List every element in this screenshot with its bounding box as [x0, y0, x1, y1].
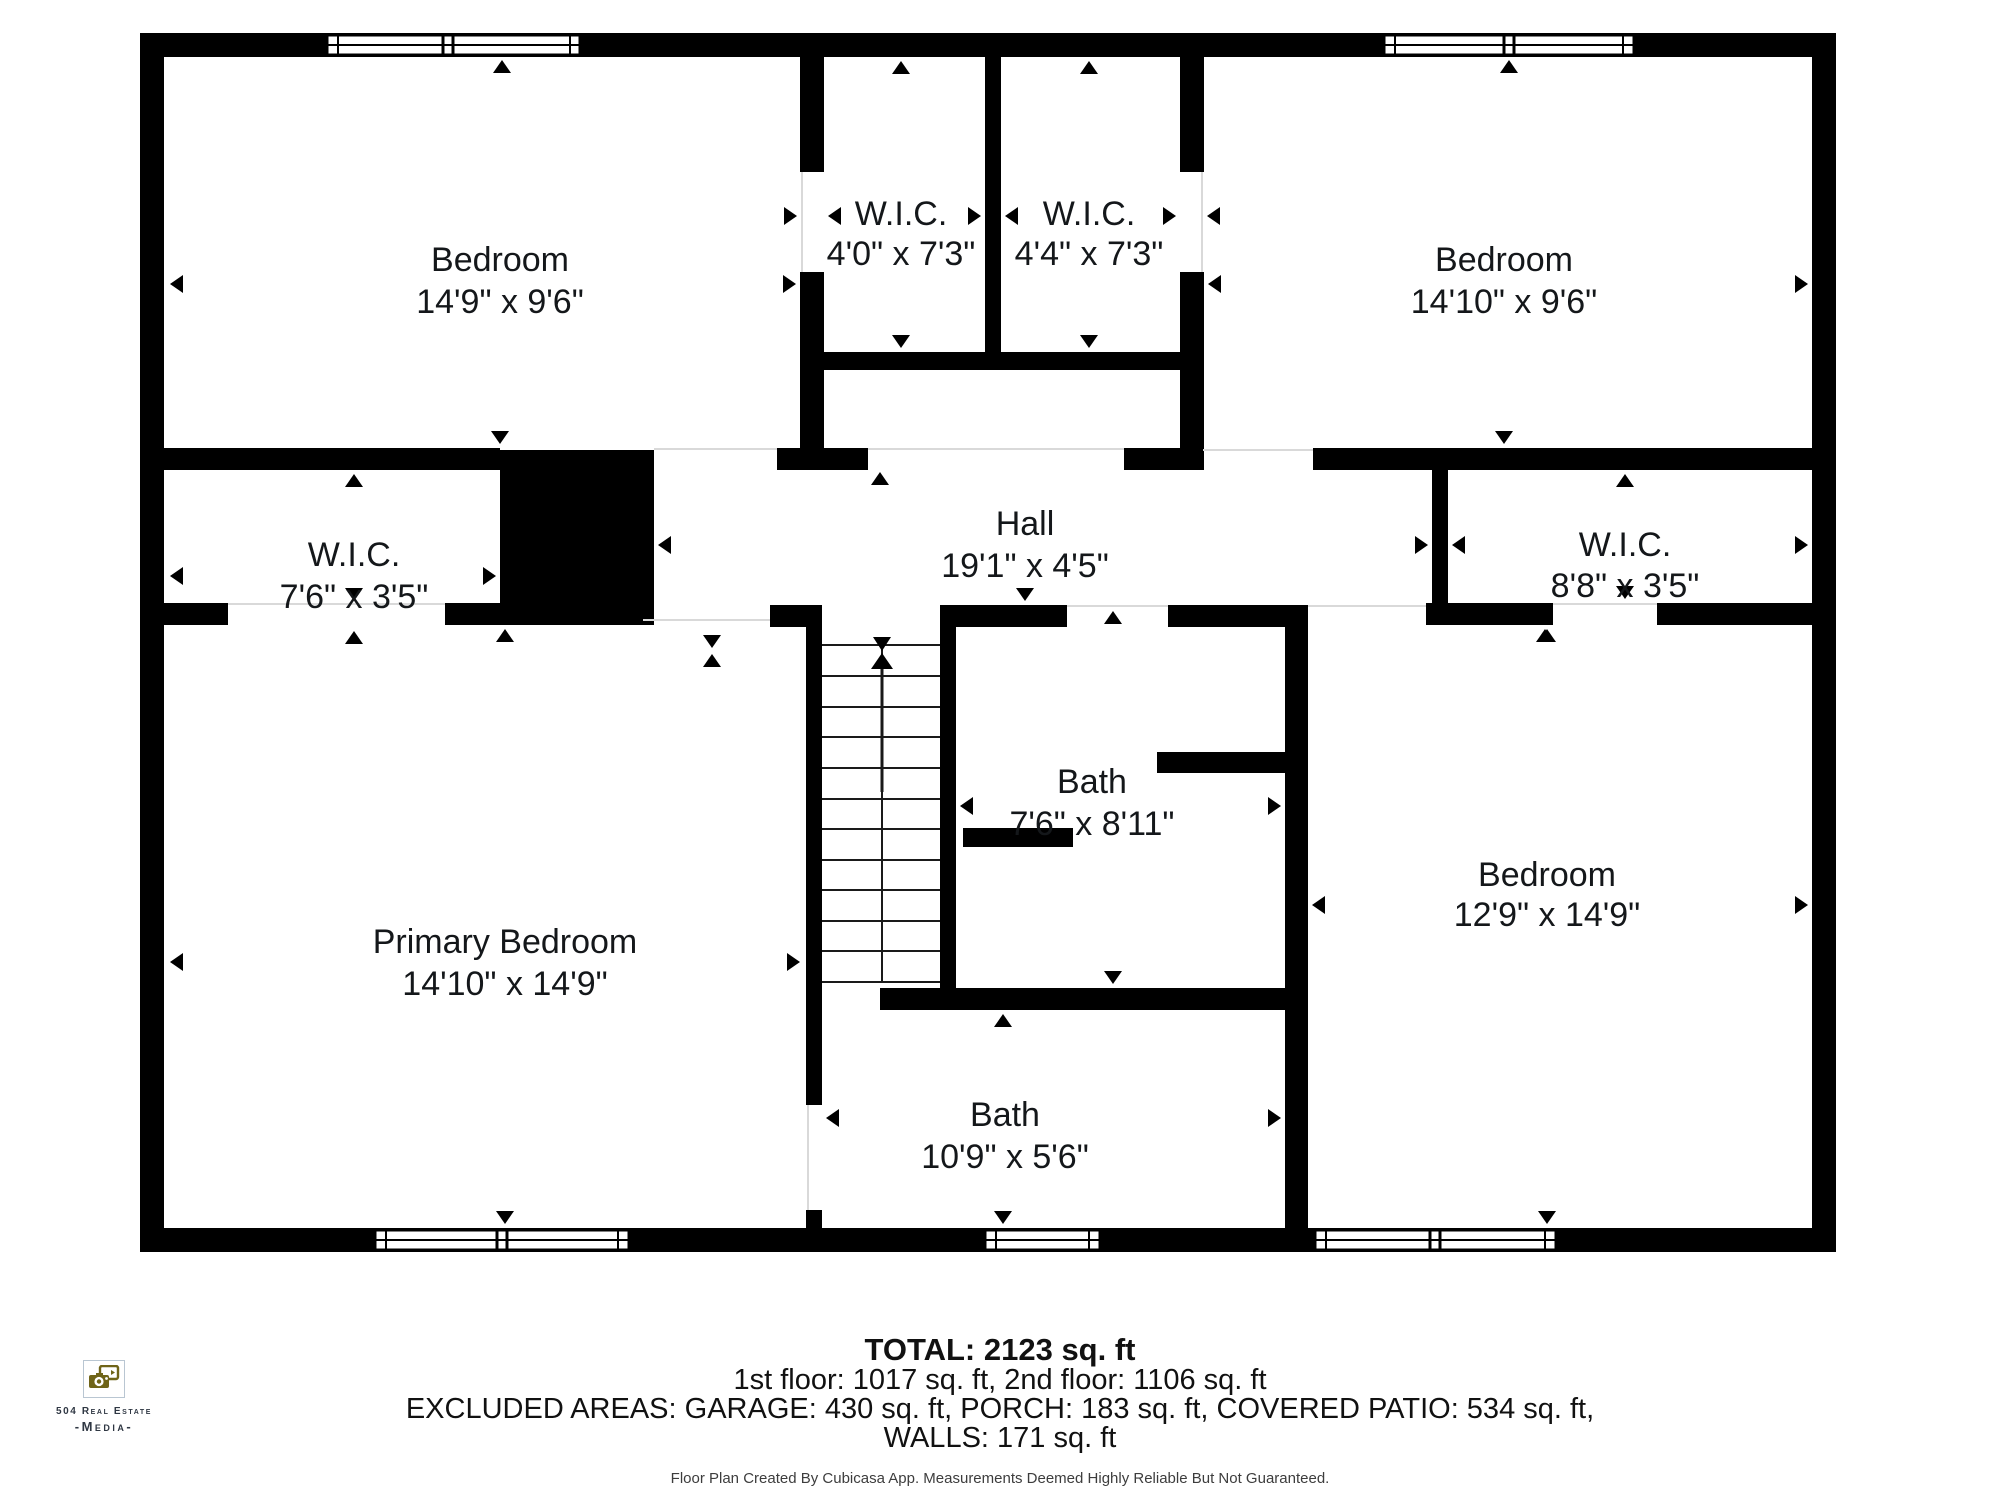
wall — [1285, 605, 1308, 1228]
wall — [1180, 272, 1204, 470]
room-dims-bedroom-top-left: 14'9" x 9'6" — [416, 283, 584, 321]
wall — [1432, 460, 1448, 605]
window-top-left — [327, 35, 580, 55]
wall — [164, 603, 228, 625]
wall — [1426, 603, 1553, 625]
wall — [800, 57, 824, 172]
agency-logo: 504 Real Estate -Media- — [48, 1360, 160, 1434]
wall — [985, 57, 1001, 370]
wall-outer-left — [140, 33, 164, 1252]
room-label-primary-bedroom: Primary Bedroom — [373, 923, 638, 961]
wall-stair-right — [940, 605, 956, 1010]
room-label-wic-2: W.I.C. — [1043, 195, 1136, 233]
room-label-bedroom-bottom-right: Bedroom — [1478, 856, 1616, 894]
room-label-bath-lower: Bath — [970, 1096, 1040, 1134]
logo-name: 504 Real Estate — [48, 1406, 160, 1417]
wall — [1313, 448, 1812, 470]
logo-media: -Media- — [48, 1419, 160, 1434]
wall-outer-right — [1812, 33, 1836, 1252]
wall — [880, 988, 1285, 1010]
chimney-block — [500, 450, 654, 625]
windows — [327, 35, 1634, 1250]
summary-total: TOTAL: 2123 sq. ft — [0, 1332, 2000, 1368]
wall — [942, 605, 1067, 627]
wall — [1657, 603, 1812, 625]
room-label-wic-1: W.I.C. — [855, 195, 948, 233]
wall — [164, 448, 500, 470]
floor-plan: Bedroom 14'9" x 9'6" W.I.C. 4'0" x 7'3" … — [0, 0, 2000, 1310]
room-dims-wic-left: 7'6" x 3'5" — [280, 578, 429, 616]
room-label-wic-left: W.I.C. — [308, 536, 401, 574]
window-bottom-middle — [985, 1230, 1100, 1250]
logo-box — [83, 1360, 125, 1398]
room-label-wic-right: W.I.C. — [1579, 526, 1672, 564]
wall — [445, 603, 500, 625]
room-label-hall: Hall — [996, 505, 1055, 543]
window-bottom-right — [1315, 1230, 1556, 1250]
wall-stair-left — [806, 605, 822, 1010]
room-dims-bedroom-top-right: 14'10" x 9'6" — [1411, 283, 1597, 321]
window-top-right — [1384, 35, 1634, 55]
wall — [1124, 448, 1203, 470]
walls — [140, 33, 1836, 1252]
room-label-bedroom-top-right: Bedroom — [1435, 241, 1573, 279]
room-label-bedroom-top-left: Bedroom — [431, 241, 569, 279]
room-dims-primary-bedroom: 14'10" x 14'9" — [402, 965, 607, 1003]
room-label-bath-upper: Bath — [1057, 763, 1127, 801]
floor-plan-page: Bedroom 14'9" x 9'6" W.I.C. 4'0" x 7'3" … — [0, 0, 2000, 1500]
room-dims-wic-right: 8'8" x 3'5" — [1551, 567, 1700, 605]
wall — [806, 1010, 822, 1105]
room-dims-bath-upper: 7'6" x 8'11" — [1009, 805, 1174, 843]
wall — [1168, 605, 1285, 627]
window-bottom-left — [375, 1230, 629, 1250]
disclaimer-text: Floor Plan Created By Cubicasa App. Meas… — [0, 1470, 2000, 1487]
stair-up-arrow-head — [871, 653, 893, 669]
room-dims-wic-1: 4'0" x 7'3" — [827, 235, 976, 273]
room-dims-bath-lower: 10'9" x 5'6" — [921, 1138, 1089, 1176]
staircase — [822, 637, 940, 982]
wall — [777, 448, 868, 470]
wall — [1180, 57, 1204, 172]
wall — [800, 272, 824, 470]
wall-bath-stub — [1157, 752, 1285, 773]
wall — [806, 1210, 822, 1228]
summary-walls: WALLS: 171 sq. ft — [0, 1422, 2000, 1455]
room-dims-bedroom-bottom-right: 12'9" x 14'9" — [1454, 896, 1640, 934]
wall — [822, 352, 1180, 370]
room-dims-wic-2: 4'4" x 7'3" — [1015, 235, 1164, 273]
camera-icon — [88, 1365, 120, 1393]
room-dims-hall: 19'1" x 4'5" — [941, 547, 1109, 585]
